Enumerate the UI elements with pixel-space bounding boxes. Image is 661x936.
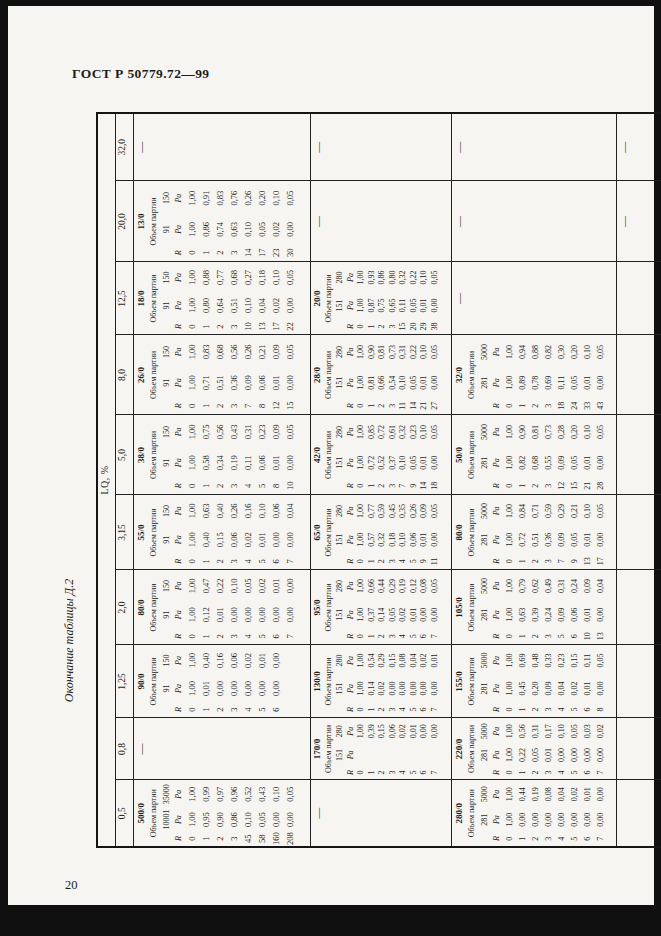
td-element: 0,02 [241,647,255,675]
tr-element: 20,000,19 [529,782,542,846]
td-element: 7 [594,767,607,779]
tr-element: 20,010,22 [213,572,227,644]
td-element: Pa [491,337,503,368]
td-element: 13/0 [135,183,148,261]
td-element: 0,01 [581,675,594,703]
td-element: 0,00 [227,675,241,703]
td-element: Объем партии [148,264,160,334]
plan-cell-b13: 13/0Объем партии91150RPaPa01,001,0010,86… [134,181,311,262]
td-element: 2 [213,703,227,717]
plan-block-20-0: 20/0Объем партии151280RPaPa01,001,0010,8… [312,264,440,334]
td-element: 0,86 [377,264,388,292]
tr-element: 20,900,97 [213,782,227,846]
td-element: 0,02 [377,675,388,703]
tr-element: 10,000,44 [516,782,529,846]
tr-element: 40,02 [398,720,409,779]
td-element: 0,51 [213,367,227,398]
td-element: 0,12 [199,600,213,629]
tr-element: 10,580,75 [199,417,213,494]
td-element: Pa [345,572,356,601]
tr-element: 130,040,18 [255,264,269,334]
td-element: 80/0 [453,497,466,569]
td-element: 91 [160,525,173,554]
td-element: 0,82 [516,447,529,478]
td-element: 2 [377,767,388,779]
plan-cell-b26: 26/0Объем партии91150RPaPa01,001,0010,71… [134,335,311,415]
tr-element: RPaPa [491,497,503,569]
td-element: Объем партии [323,264,334,334]
td-element: 0,01 [419,447,430,478]
td-element: 6 [419,629,430,643]
tr-element: 2815000 [478,782,491,846]
td-element: 0,10 [241,292,255,320]
td-element: 0 [503,554,516,568]
td-element: 3 [542,832,555,845]
td-element [334,478,345,493]
tr-element: 230,020,10 [269,183,283,261]
td-element: 1,00 [356,447,367,478]
tr-element: 13/0 [135,183,148,261]
td-element: 10 [283,478,297,493]
td-element: Объем партии [466,782,478,846]
tr-element: 01,00 [356,720,367,779]
tr-element: 70,000,04 [283,497,297,569]
td-element: Pa [345,675,356,703]
td-element: 0,71 [529,497,542,526]
td-element: 3 [542,703,555,717]
tr-element: RPaPa [173,264,185,334]
table-caption-rotated: Окончание таблицы Д.2 [62,473,78,808]
td-element: 0,84 [516,497,529,526]
td-element: 1,00 [185,337,199,368]
td-element: Объем партии [466,337,478,414]
td-element [356,743,367,767]
td-element: Pa [173,807,185,832]
tr-element: 80,000,05 [594,647,607,717]
tr-element: Объем партии [466,417,478,494]
td-element: 0,00 [255,600,269,629]
tr-element: 2815000 [478,497,491,569]
tr-element: 270,000,05 [430,337,441,414]
td-element: 0,75 [377,292,388,320]
tr-element: 170,050,20 [255,183,269,261]
tr-element: 01,001,00 [356,417,367,494]
tr-element: Объем партии [323,417,334,494]
td-element: 0,02 [398,720,409,744]
plan-cell-b18: 18/0Объем партии91150RPaPa01,001,0010,80… [134,262,311,335]
td-element: 15 [568,478,581,493]
tr-element: 150,110,32 [398,264,409,334]
td-element: 0,57 [367,525,378,554]
td-element: 1,00 [185,447,199,478]
tr-element: 10,950,99 [199,782,213,846]
td-element: Pa [345,497,356,526]
td-element [334,629,345,643]
td-element: 1 [199,832,213,845]
td-element: 0,09 [555,525,568,554]
td-element: 6 [581,703,594,717]
tr-element: 01,001,00 [356,337,367,414]
td-element [398,743,409,767]
td-element: 0,00 [283,572,297,601]
td-element: 91 [160,292,173,320]
td-element: 1,00 [503,417,516,448]
tr-element: RPaPa [173,183,185,261]
td-element: Pa [345,720,356,744]
tr-element: 91150 [160,497,173,569]
td-element: 0,72 [516,525,529,554]
td-element: 2 [529,398,542,413]
rotated-table-container: LQ, %0,50,81,252,03,155,08,012,520,032,0… [96,114,660,848]
td-element: 0,00 [555,743,568,767]
td-element: 3 [388,398,399,413]
td-element: 0 [503,629,516,643]
td-element: 0,28 [555,417,568,448]
td-element: R [491,478,503,493]
td-element: 0,02 [269,292,283,320]
td-element: 4 [398,554,409,568]
td-element: 0,05 [594,647,607,675]
plan-block-18-0: 18/0Объем партии91150RPaPa01,001,0010,80… [135,264,297,334]
td-element: 0,16 [213,647,227,675]
td-element: 0,63 [199,497,213,526]
td-element: 0,66 [377,367,388,398]
tr-element: Объем партии [466,647,478,717]
lq-value-0,8: 0,8 [116,718,134,780]
td-element: Pa [491,647,503,675]
no-plan-dash: — [311,780,452,847]
td-element: 1 [199,629,213,643]
td-element: 1,00 [503,720,516,744]
tr-element: RPaPa [491,720,503,779]
td-element: 2 [377,320,388,334]
empty-cell [617,780,661,847]
td-element: 2 [377,629,388,643]
td-element [160,398,173,413]
tr-element: 01,001,00 [503,417,516,494]
td-element: 0,45 [516,675,529,703]
td-element: 0,96 [227,782,241,807]
td-element: 0,00 [594,447,607,478]
td-element: 2 [213,398,227,413]
td-element: 0,02 [255,572,269,601]
tr-element: 50,000,04 [409,647,420,717]
td-element: 0,09 [269,417,283,448]
td-element: 0,33 [542,647,555,675]
tr-element: Объем партии [466,782,478,846]
tr-element: 130,000,04 [594,572,607,644]
td-element: 65/0 [312,497,323,569]
tr-element: 60,000,03 [581,720,594,779]
tr-element: 40,000,08 [398,647,409,717]
td-element: 2 [529,629,542,643]
td-element: 281 [478,447,491,478]
td-element: 0,01 [199,675,213,703]
td-element: Pa [345,525,356,554]
td-element: 0,54 [367,647,378,675]
no-plan-dash: — [134,718,311,780]
td-element: 0,04 [283,497,297,526]
tr-element: 450,100,52 [241,782,255,846]
tr-element: 38/0 [135,417,148,494]
td-element: 0,27 [241,264,255,292]
td-element: 1,00 [356,647,367,675]
td-element: 0,00 [283,447,297,478]
td-element: 0,05 [430,497,441,526]
td-element: 0,05 [388,600,399,629]
td-element [160,703,173,717]
td-element: 0,00 [283,600,297,629]
td-element: 1,00 [185,782,199,807]
td-element: 91 [160,600,173,629]
td-element: 0,10 [269,264,283,292]
td-element: 0,63 [516,600,529,629]
td-element: 280 [334,572,345,601]
td-element: 1,00 [185,525,199,554]
td-element: 0,00 [430,367,441,398]
tr-element: Объем партии [323,720,334,779]
td-element: 7 [594,832,607,845]
td-element: 1,00 [356,264,367,292]
td-element: 0 [356,629,367,643]
td-element: 0,00 [430,447,441,478]
td-element: 1,00 [185,367,199,398]
tr-element: 70,090,29 [555,497,568,569]
tr-element: RPaPa [173,497,185,569]
plan-block-80-0: 80/0Объем партии91150RPaPa01,001,0010,12… [135,572,297,644]
tr-element: 20,740,83 [213,183,227,261]
tr-element: 18/0 [135,264,148,334]
td-element [334,767,345,779]
td-element: 45 [241,832,255,845]
tr-element: 20,020,29 [377,647,388,717]
tr-element: 65/0 [312,497,323,569]
td-element: 1,00 [503,675,516,703]
tr-element: 2815000 [478,647,491,717]
tr-element: Объем партии [148,264,160,334]
tr-element: 20,390,62 [529,572,542,644]
td-element [160,832,173,845]
td-element: 7 [430,767,441,779]
tr-element: Объем партии [148,183,160,261]
td-element: 0,94 [516,337,529,368]
td-element: 11 [430,554,441,568]
td-element: 17 [255,245,269,261]
td-element: Pa [345,292,356,320]
td-element: 30 [283,245,297,261]
td-element: 7 [283,554,297,568]
td-element: 2 [529,478,542,493]
td-element [334,554,345,568]
td-element: 0 [185,832,199,845]
tr-element: 20,150,40 [213,497,227,569]
td-element: R [345,478,356,493]
td-element: 5000 [478,417,491,448]
td-element: 0,00 [227,600,241,629]
td-element: 0,16 [241,497,255,526]
tr-element: 91150 [160,264,173,334]
tr-element: 10,820,90 [516,417,529,494]
td-element: 0,90 [213,807,227,832]
td-element [478,629,491,643]
tr-element: 30,000,15 [388,647,399,717]
td-element: 0 [185,703,199,717]
td-element: 1 [367,629,378,643]
td-element: 91 [160,214,173,245]
td-element: 28/0 [312,337,323,414]
td-element: 0,37 [367,600,378,629]
td-element: 0,54 [388,367,399,398]
td-element: 2 [213,832,227,845]
plan-cell-b220: 220/0Объем партии2815000RPaPa01,001,0010… [452,718,617,780]
tr-element: 30,010,17 [542,720,555,779]
td-element: 0,44 [377,572,388,601]
td-element: 0,10 [581,337,594,368]
td-element: 0,05 [283,264,297,292]
td-element: R [345,398,356,413]
tr-element: 130,010,10 [581,497,594,569]
tr-element: 01,001,00 [356,572,367,644]
plan-cell-b32: 32/0Объем партии2815000RPaPa01,001,0010,… [452,335,617,415]
plan-cell-b500: 500/0Объем партии1000135000RPaPa01,001,0… [134,780,311,847]
td-element: 0,97 [213,782,227,807]
tr-element: 500/0Объем партии1000135000RPaPa01,001,0… [134,113,311,847]
lq-value-32,0: 32,0 [116,113,134,181]
td-element: 0,43 [255,782,269,807]
td-element: 0,88 [199,264,213,292]
td-element: 0,04 [594,572,607,601]
tr-element: 30,650,80 [388,264,399,334]
td-element: 0,90 [516,417,529,448]
td-element: 2 [377,554,388,568]
plan-block-38-0: 38/0Объем партии91150RPaPa01,001,0010,58… [135,417,297,494]
tr-element: 60,000,02 [419,647,430,717]
tr-element: 60,000,01 [581,782,594,846]
td-element: 0,05 [283,417,297,448]
tr-element: Объем партии [148,417,160,494]
td-element: 0,09 [555,600,568,629]
td-element: 9 [419,554,430,568]
td-element: 0,00 [430,600,441,629]
td-element [160,245,173,261]
td-element: 150 [160,183,173,214]
td-element: 5000 [478,497,491,526]
td-element: 6 [269,629,283,643]
td-element: 13 [581,554,594,568]
tr-element: RPaPa [173,572,185,644]
td-element: 2 [213,629,227,643]
td-element: 0,00 [283,292,297,320]
td-element: 0,02 [594,720,607,744]
td-element: 130/0 [312,647,323,717]
tr-element: 151280 [334,497,345,569]
tr-element: 01,001,00 [356,497,367,569]
tr-element: 170,000,05 [594,497,607,569]
td-element: 0,10 [398,525,409,554]
td-element: 0 [356,554,367,568]
td-element: 0,81 [377,337,388,368]
td-element: Объем партии [148,183,160,261]
tr-element: 151280 [334,720,345,779]
td-element: Pa [491,525,503,554]
empty-cell [617,645,661,718]
td-element: 0,35 [398,497,409,526]
lq-value-12,5: 12,5 [116,262,134,335]
td-element: 0,05 [283,183,297,214]
td-element: 151 [334,447,345,478]
tr-element: 10,120,47 [199,572,213,644]
td-element: Pa [173,367,185,398]
td-element: Объем партии [466,647,478,717]
td-element: 55/0 [135,497,148,569]
tr-element: RPaPa [345,497,356,569]
td-element: 15 [398,320,409,334]
tr-element: 10,570,77 [367,497,378,569]
tr-element: 30,240,49 [542,572,555,644]
td-element: 0,06 [388,720,399,744]
tr-element: 20/0 [312,264,323,334]
td-element: Pa [173,647,185,675]
no-plan-dash: — [311,113,452,181]
td-element: 0 [185,478,199,493]
td-element: 0,22 [409,337,420,368]
td-element: 0,02 [419,647,430,675]
td-element: 208 [283,832,297,845]
td-element: Pa [173,497,185,526]
td-element: 1 [367,554,378,568]
td-element: 0,11 [555,367,568,398]
td-element: Объем партии [323,337,334,414]
tr-element: 20,200,48 [529,647,542,717]
tr-element: 280,000,05 [594,417,607,494]
plan-cell-b28: 28/0Объем партии151280RPaPa01,001,0010,8… [311,335,452,415]
td-element: 1,00 [356,675,367,703]
td-element: 6 [581,767,594,779]
tr-element: 90/0 [135,647,148,717]
td-element: Объем партии [148,782,160,846]
td-element: 4 [241,554,255,568]
tr-element: 70,000,05 [430,572,441,644]
no-plan-dash: — [134,113,311,181]
td-element: 0,00 [430,292,441,320]
td-element: 281 [478,675,491,703]
tr-element: —— [617,113,661,847]
td-element: Pa [173,675,185,703]
td-element: Pa [173,183,185,214]
td-element: 0,09 [269,337,283,368]
td-element: 14 [241,245,255,261]
td-element: 0,10 [255,497,269,526]
plan-block-105-0: 105/0Объем партии2815000RPaPa01,001,0010… [453,572,607,644]
td-element: 0,73 [388,337,399,368]
tr-element: 01,001,00 [185,183,199,261]
td-element: 0,10 [398,447,409,478]
td-element [160,478,173,493]
tr-element: 20,750,86 [377,264,388,334]
td-element: 0,05 [255,214,269,245]
td-element: 0,00 [542,807,555,832]
td-element: Pa [491,807,503,832]
td-element: 0,05 [283,337,297,368]
td-element: 3 [227,832,241,845]
plan-cell-b170: 170/0Объем партии151280RPaPa01,0010,3920… [311,718,452,780]
td-element: 0,00 [581,807,594,832]
tr-element: 91150 [160,417,173,494]
td-element: 0,20 [568,337,581,368]
td-element: 0,05 [594,337,607,368]
tr-element: 50,090,31 [555,572,568,644]
tr-element: 20,780,88 [529,337,542,414]
